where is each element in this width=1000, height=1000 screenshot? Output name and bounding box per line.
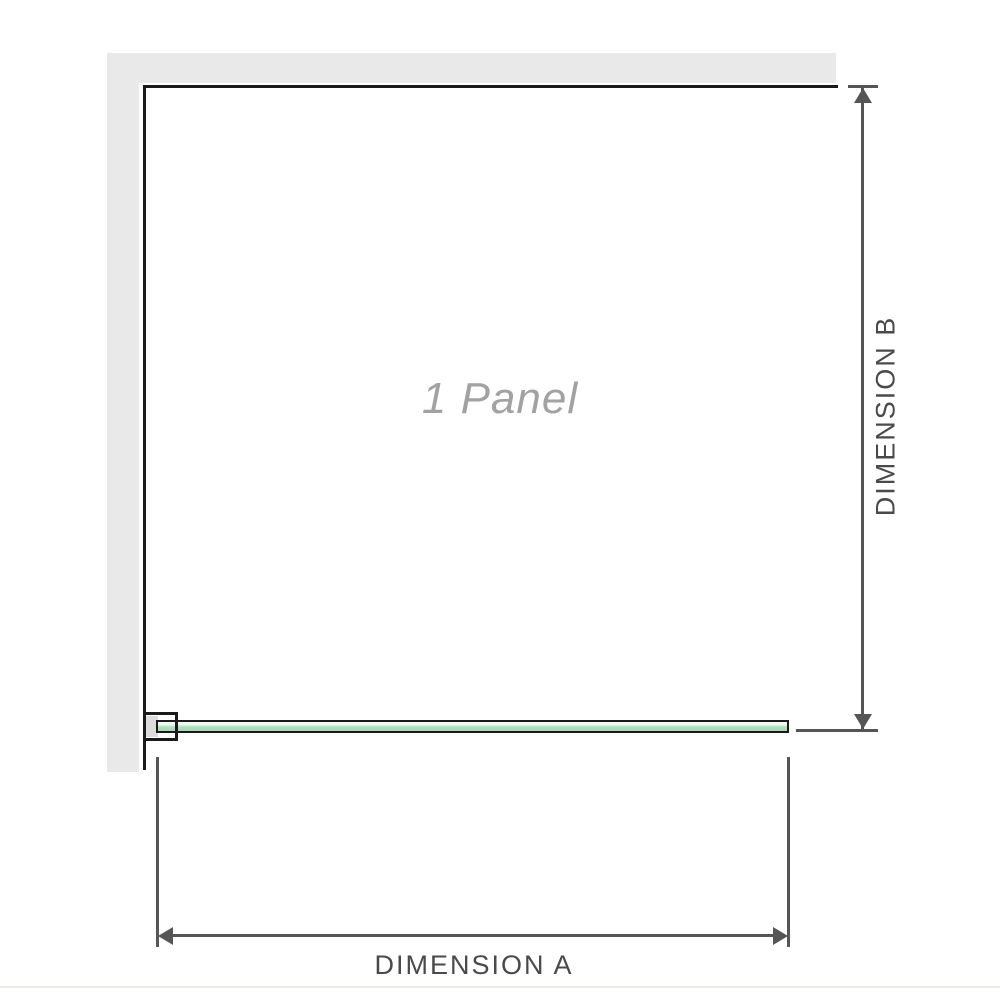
dimension-a-label: DIMENSION A [160,950,788,981]
dimension-b-bottom-tick [796,729,878,732]
dimension-b-line [861,88,864,730]
enclosure-top-edge [143,85,838,88]
enclosure-left-edge [143,85,146,770]
dimension-a-line [162,934,784,937]
wall-top [107,53,836,83]
dimension-a-extension-left [156,757,159,947]
dimension-a-arrow-left-icon [158,927,173,945]
dimension-a-extension-right [787,757,790,947]
glass-panel [156,720,789,733]
wall-bracket-outline [143,712,178,741]
footer-rule [0,986,1000,988]
panel-count-label: 1 Panel [0,374,1000,424]
dimension-b-label: DIMENSION B [871,316,902,517]
shower-panel-dimension-diagram: 1 Panel DIMENSION B DIMENSION A [0,0,1000,1000]
dimension-b-arrow-down-icon [854,714,872,729]
dimension-b-arrow-up-icon [854,88,872,103]
dimension-a-arrow-right-icon [773,927,788,945]
